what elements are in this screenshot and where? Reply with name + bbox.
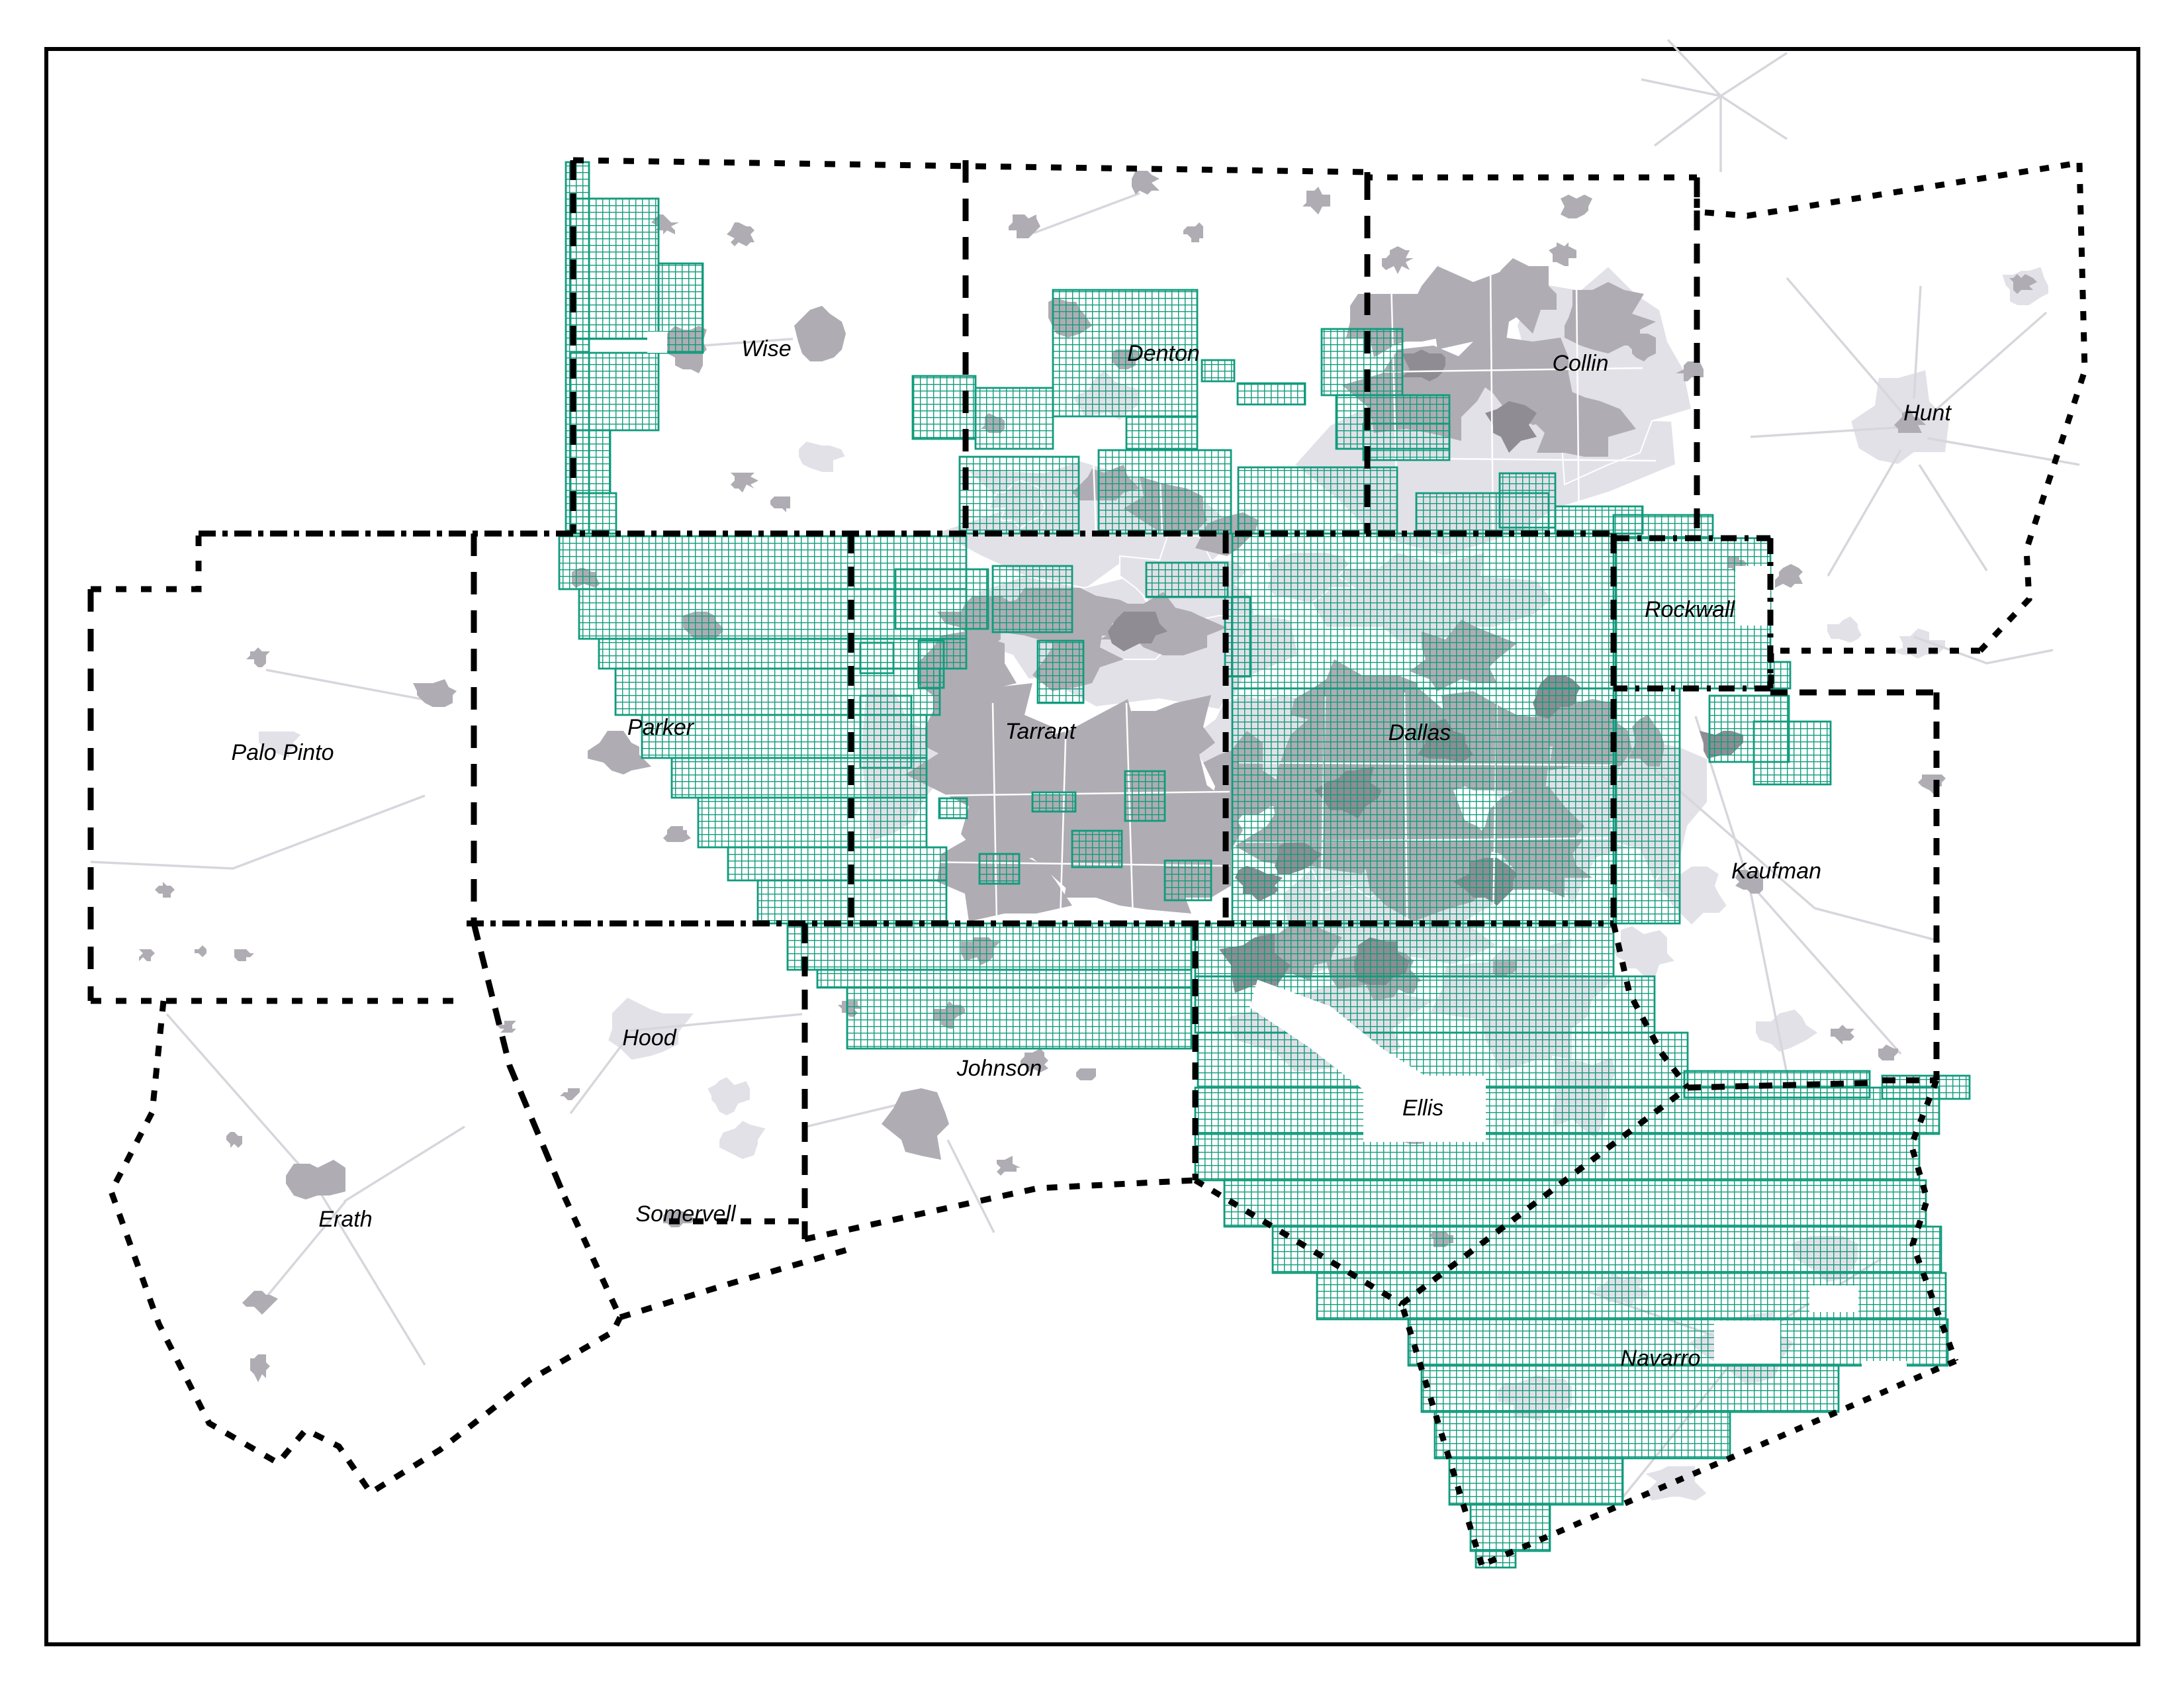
coverage-grid-region — [570, 430, 610, 493]
county-label-tarrant: Tarrant — [1005, 719, 1077, 744]
coverage-grid-region — [939, 798, 967, 818]
coverage-grid-region — [1238, 383, 1305, 404]
coverage-grid-region — [1195, 1134, 1919, 1180]
county-label-denton: Denton — [1127, 341, 1200, 366]
county-label-hood: Hood — [622, 1025, 676, 1051]
county-label-rockwall: Rockwall — [1645, 597, 1735, 622]
coverage-grid-region — [1273, 1227, 1941, 1273]
coverage-grid-region — [979, 854, 1019, 884]
coverage-grid-region — [976, 388, 1053, 449]
coverage-grid-region — [672, 758, 927, 798]
coverage-grid-region — [1238, 467, 1397, 534]
coverage-grid-region — [615, 669, 940, 715]
map-canvas: Wise Denton Collin Hunt Palo Pinto Parke… — [0, 0, 2184, 1688]
coverage-grid-region — [599, 639, 966, 669]
coverage-grid-region — [570, 199, 659, 339]
coverage-grid-region — [1165, 861, 1211, 900]
coverage-grid-region — [1416, 493, 1549, 534]
coverage-grid-region — [1126, 416, 1197, 449]
urban-area — [1076, 1068, 1096, 1080]
county-label-somervell: Somervell — [635, 1201, 737, 1227]
coverage-grid-region — [570, 353, 659, 430]
county-label-palo-pinto: Palo Pinto — [232, 740, 334, 765]
coverage-grid-region — [1038, 641, 1083, 703]
coverage-grid-region — [1072, 831, 1122, 867]
county-label-dallas: Dallas — [1388, 720, 1451, 745]
coverage-grid-region — [1363, 424, 1449, 460]
county-label-ellis: Ellis — [1402, 1096, 1443, 1121]
coverage-grid-region — [1224, 1180, 1926, 1227]
grid-hole — [1735, 566, 1770, 626]
coverage-grid-region — [728, 847, 946, 880]
coverage-grid-region — [1449, 1458, 1623, 1505]
grid-hole — [1809, 1286, 1858, 1312]
county-label-johnson: Johnson — [956, 1056, 1042, 1081]
grid-hole — [1774, 1436, 1820, 1466]
coverage-grid-region — [1195, 1088, 1939, 1134]
coverage-grid-region — [993, 566, 1072, 632]
coverage-grid-region — [1146, 563, 1228, 597]
coverage-grid-region — [1471, 1505, 1550, 1551]
coverage-grid-region — [559, 536, 966, 589]
coverage-grid-region — [1202, 360, 1234, 381]
coverage-grid-region — [1125, 771, 1165, 821]
coverage-grid-region — [847, 988, 1191, 1049]
county-label-navarro: Navarro — [1621, 1346, 1701, 1371]
coverage-grid-region — [960, 457, 1079, 534]
coverage-grid-region — [1032, 792, 1075, 812]
coverage-grid-region — [570, 493, 616, 534]
coverage-grid-region — [579, 589, 966, 639]
coverage-grid-region — [698, 798, 927, 847]
coverage-grid-region — [1322, 329, 1402, 395]
grid-hole — [647, 332, 667, 353]
coverage-grid-region — [788, 923, 1191, 970]
coverage-grid-region — [1195, 923, 1614, 976]
coverage-grid-region — [1099, 450, 1231, 534]
grid-hole — [1714, 1321, 1780, 1364]
county-label-erath: Erath — [318, 1207, 372, 1232]
county-label-wise: Wise — [741, 336, 791, 361]
county-label-parker: Parker — [627, 715, 695, 740]
coverage-grid-region — [817, 970, 1191, 988]
coverage-grid-region — [1754, 722, 1831, 784]
coverage-grid-region — [1422, 1366, 1839, 1412]
coverage-grid-region — [1614, 688, 1680, 923]
county-label-hunt: Hunt — [1903, 400, 1952, 426]
county-label-kaufman: Kaufman — [1731, 859, 1821, 884]
coverage-grid-region — [1232, 534, 1616, 688]
county-label-collin: Collin — [1552, 351, 1608, 376]
coverage-grid-region — [1435, 1412, 1730, 1458]
